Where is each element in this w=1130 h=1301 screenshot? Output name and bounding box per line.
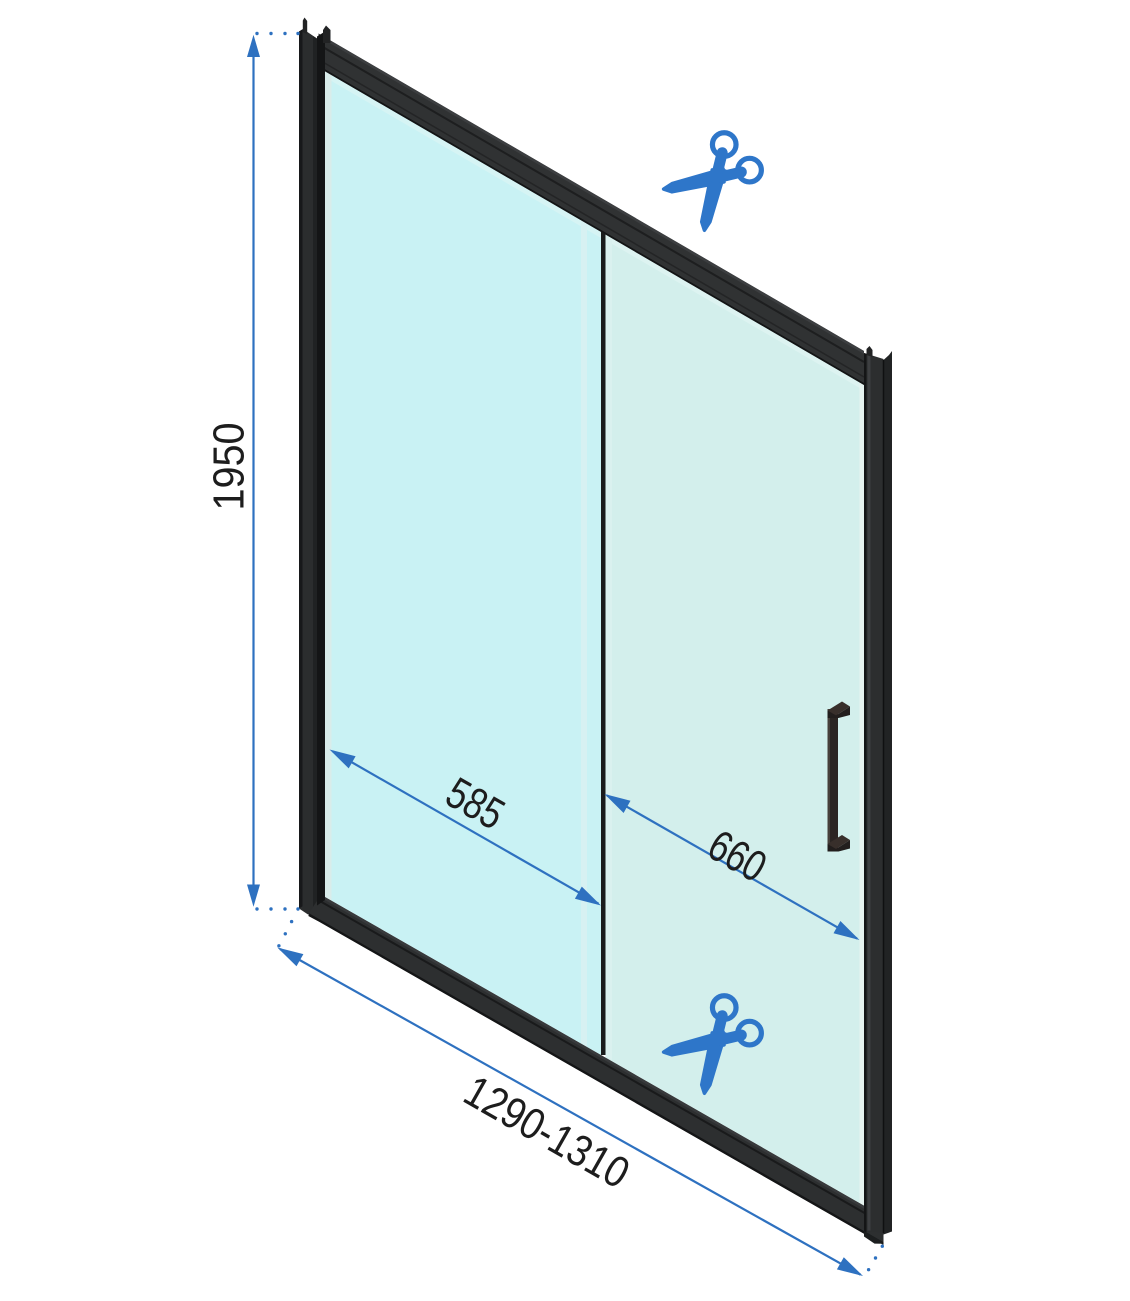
svg-text:1950: 1950 <box>205 423 254 511</box>
